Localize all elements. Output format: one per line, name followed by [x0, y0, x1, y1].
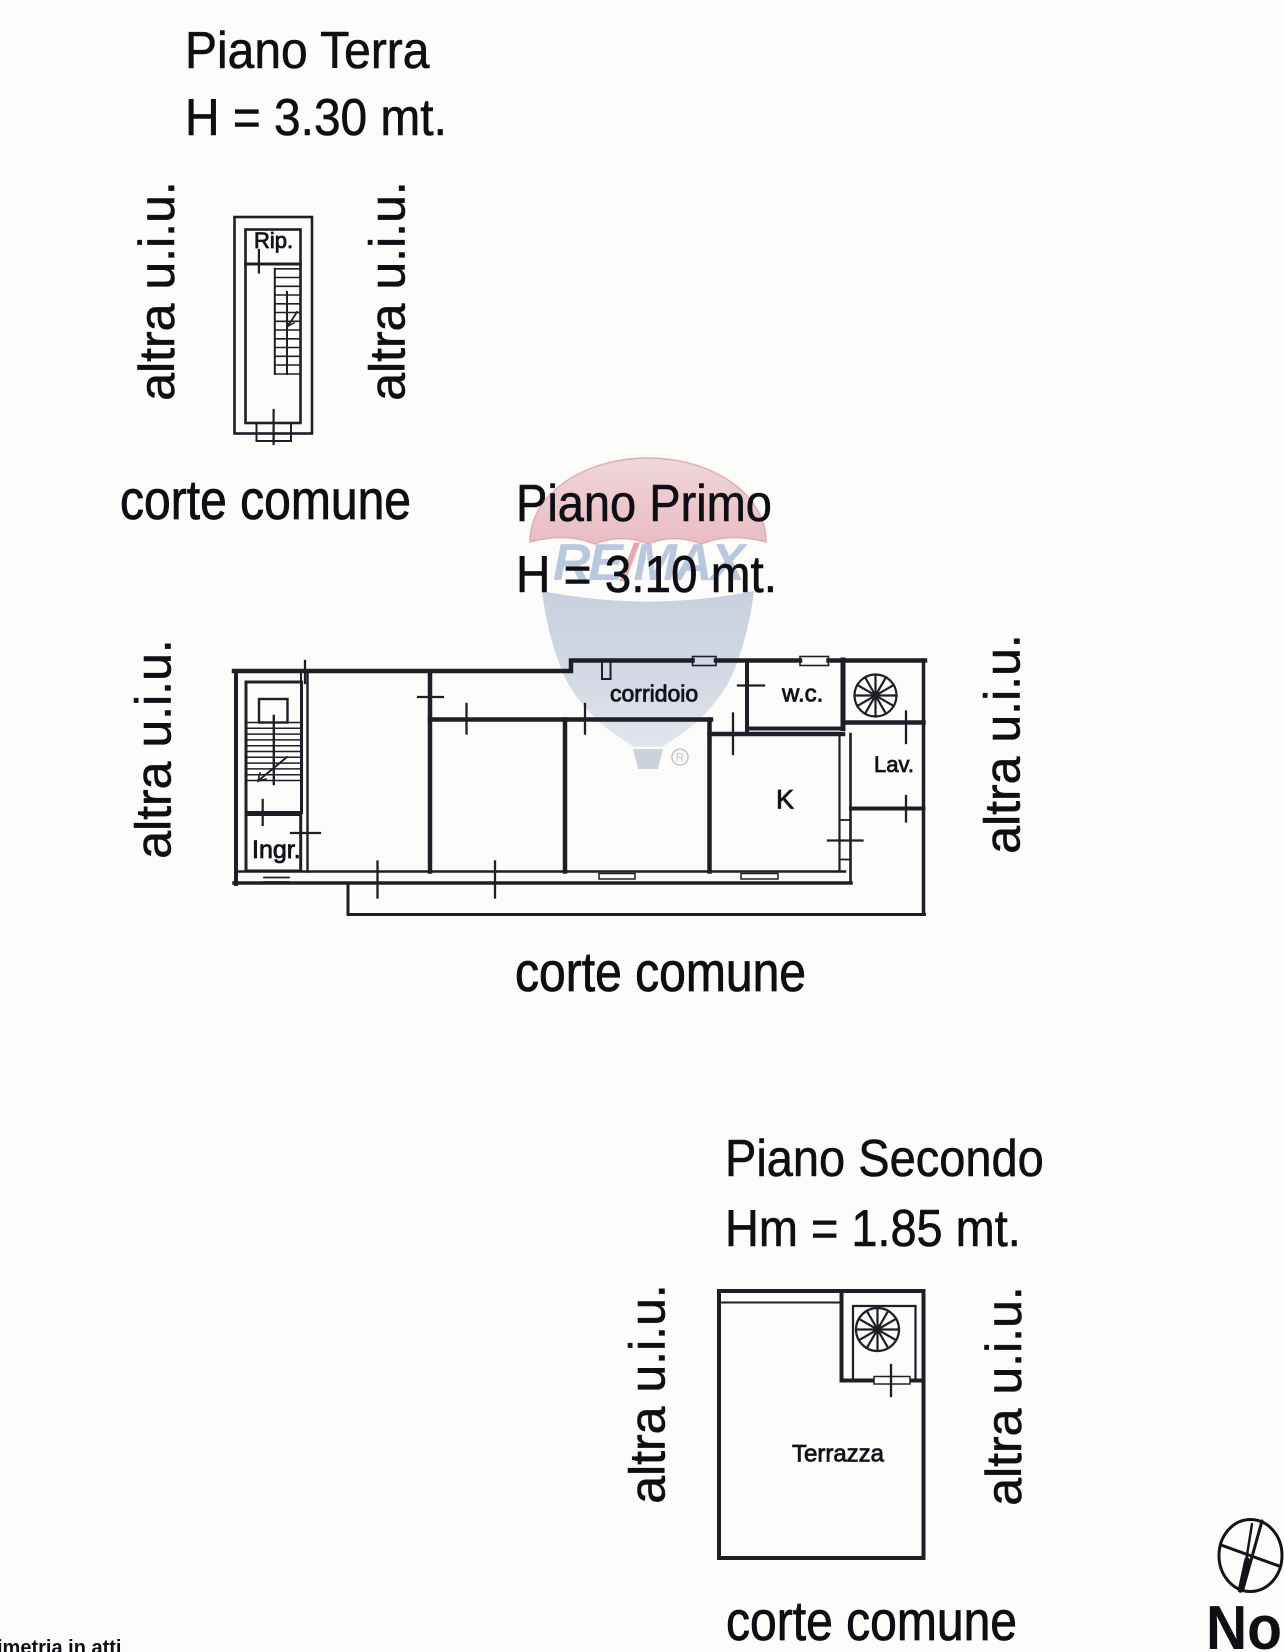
svg-text:Terrazza: Terrazza [792, 1441, 885, 1468]
svg-text:altra u.i.u.: altra u.i.u. [976, 1286, 1032, 1506]
svg-text:R: R [676, 751, 685, 765]
svg-text:corte comune: corte comune [515, 942, 806, 1004]
svg-text:Piano Terra: Piano Terra [185, 21, 430, 79]
svg-text:corte comune: corte comune [120, 470, 411, 532]
svg-text:altra u.i.u.: altra u.i.u. [975, 634, 1031, 854]
svg-text:H = 3.30 mt.: H = 3.30 mt. [185, 88, 447, 146]
svg-text:altra u.i.u.: altra u.i.u. [126, 639, 182, 859]
svg-text:altra u.i.u.: altra u.i.u. [360, 181, 416, 401]
svg-text:H = 3.10 mt.: H = 3.10 mt. [516, 545, 777, 603]
svg-text:w.c.: w.c. [781, 681, 823, 708]
svg-text:Piano Secondo: Piano Secondo [725, 1129, 1044, 1188]
svg-text:imetria in atti: imetria in atti [0, 1637, 121, 1652]
svg-text:Rip.: Rip. [254, 228, 293, 253]
svg-text:Lav.: Lav. [874, 752, 914, 777]
svg-text:altra u.i.u.: altra u.i.u. [129, 181, 185, 401]
svg-text:corridoio: corridoio [610, 681, 698, 707]
svg-text:corte comune: corte comune [726, 1591, 1017, 1652]
svg-text:Nord: Nord [1206, 1593, 1284, 1652]
svg-text:altra u.i.u.: altra u.i.u. [620, 1284, 676, 1504]
svg-text:Piano Primo: Piano Primo [516, 474, 772, 533]
svg-text:Hm = 1.85 mt.: Hm = 1.85 mt. [725, 1200, 1021, 1258]
svg-text:Ingr.: Ingr. [252, 836, 301, 864]
svg-text:K: K [776, 785, 794, 815]
